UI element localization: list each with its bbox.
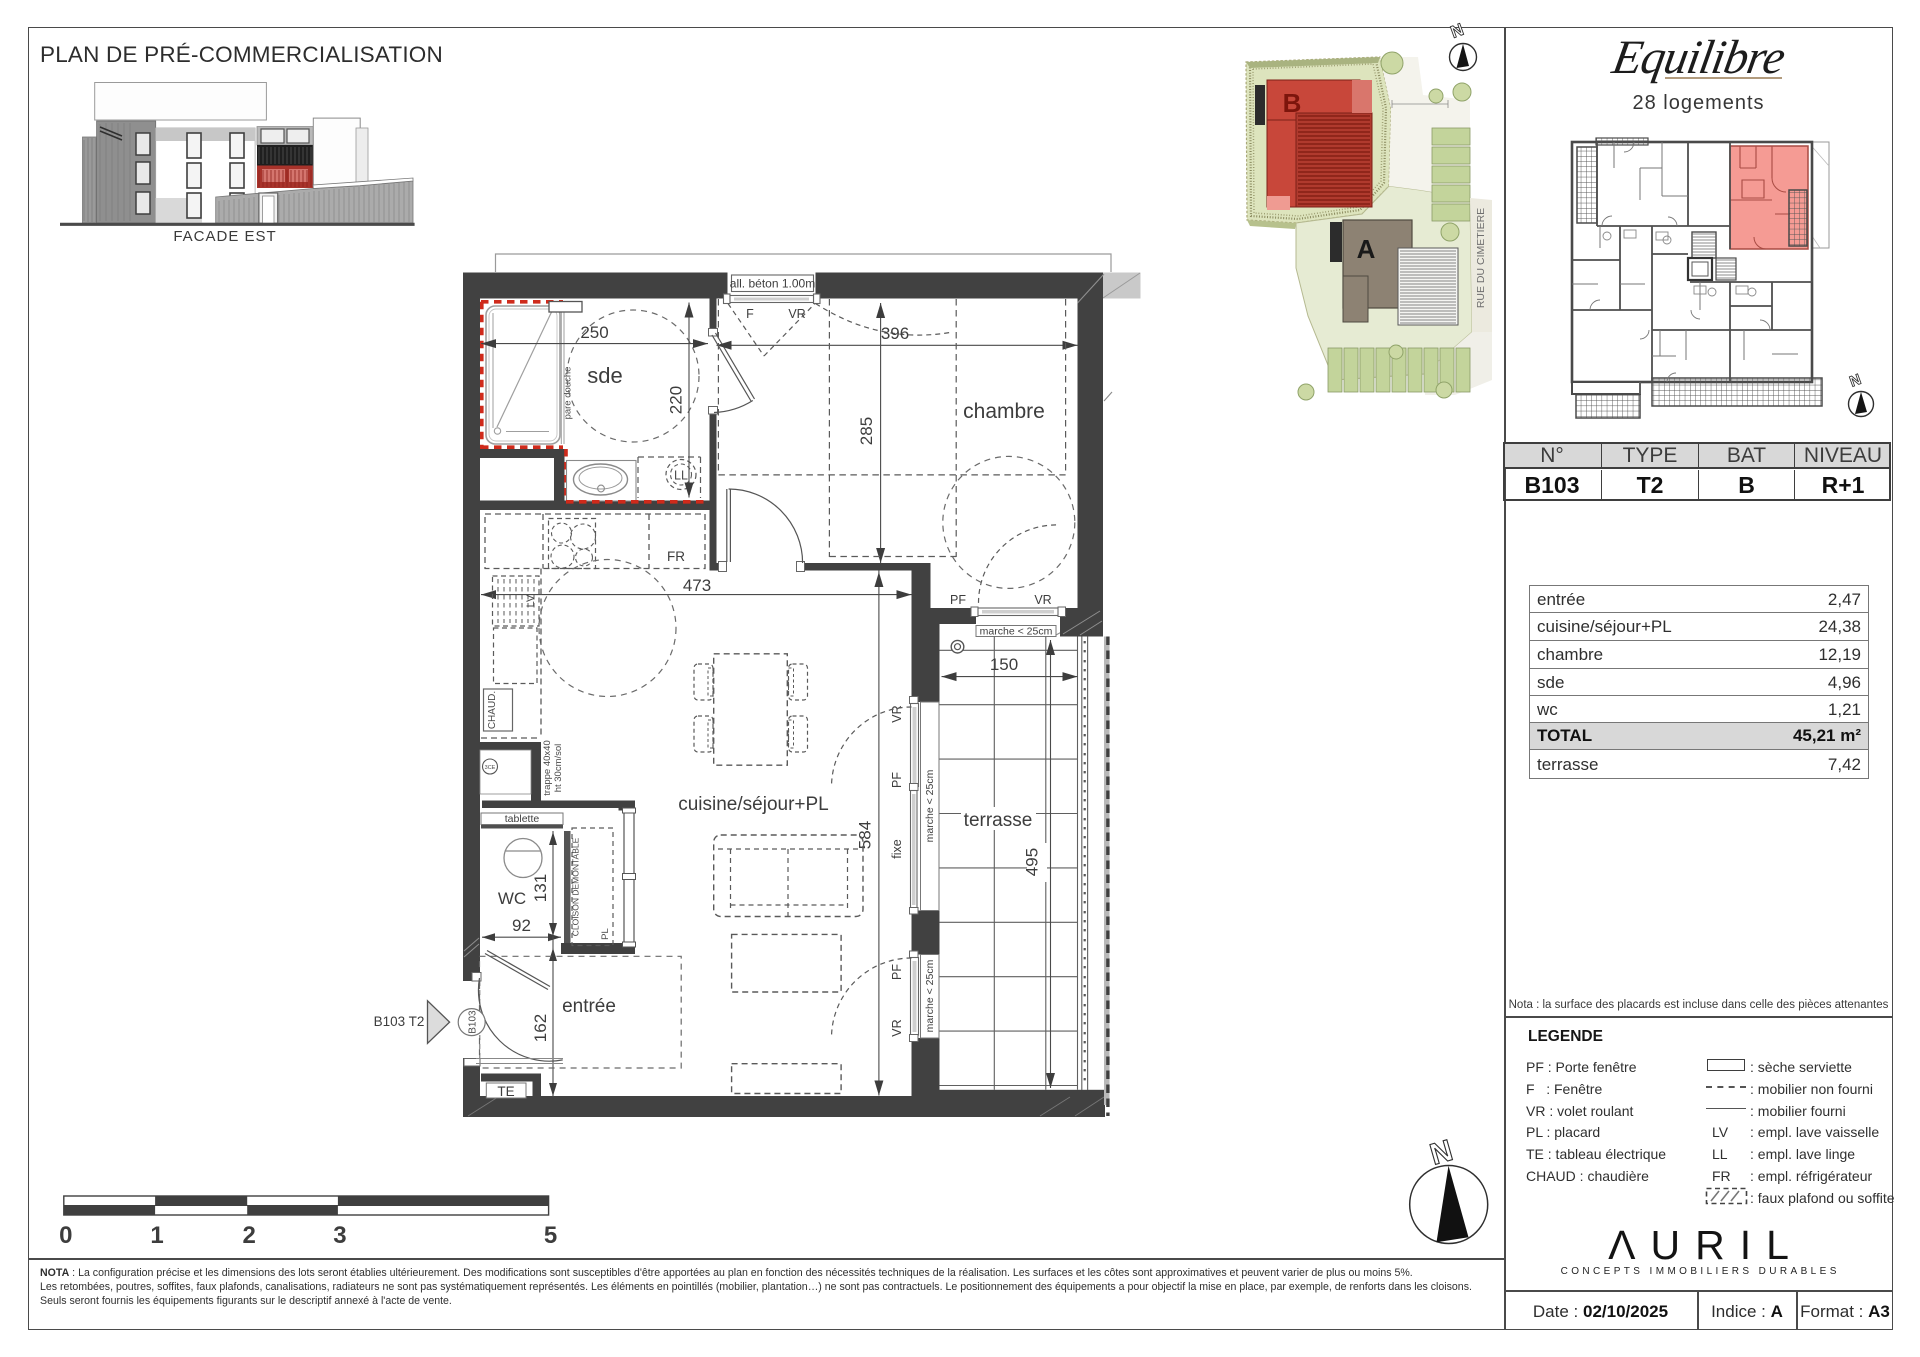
svg-text:CHAUD.: CHAUD. (487, 691, 498, 729)
svg-text:584: 584 (856, 821, 875, 849)
svg-text:marche < 25cm: marche < 25cm (980, 626, 1053, 638)
svg-text:B103 T2: B103 T2 (374, 1014, 425, 1029)
svg-text:473: 473 (683, 576, 711, 595)
svg-text:trappe 40x40: trappe 40x40 (542, 740, 553, 795)
svg-text:396: 396 (881, 324, 909, 343)
svg-text:VR: VR (788, 307, 805, 321)
svg-text:pare douche: pare douche (563, 367, 574, 420)
svg-text:all. béton 1.00m: all. béton 1.00m (730, 277, 815, 291)
svg-text:tablette: tablette (505, 813, 540, 825)
svg-text:ht 30cm/sol: ht 30cm/sol (553, 744, 564, 793)
svg-text:sde: sde (587, 363, 622, 388)
svg-text:150: 150 (990, 655, 1018, 674)
svg-text:2: 2 (243, 1222, 256, 1249)
svg-text:marche < 25cm: marche < 25cm (924, 769, 936, 842)
svg-text:TE: TE (497, 1084, 514, 1099)
svg-text:PF: PF (890, 964, 904, 980)
svg-text:220: 220 (667, 386, 686, 414)
svg-text:LV: LV (525, 594, 537, 607)
svg-text:1: 1 (150, 1222, 163, 1249)
svg-text:VR: VR (890, 1019, 904, 1036)
svg-text:B103: B103 (468, 1010, 479, 1034)
svg-text:marche < 25cm: marche < 25cm (924, 959, 936, 1032)
svg-text:162: 162 (531, 1014, 550, 1042)
svg-text:terrasse: terrasse (964, 810, 1033, 831)
svg-text:PL: PL (600, 928, 611, 940)
svg-text:250: 250 (580, 323, 608, 342)
svg-text:CLOISON DEMONTABLE: CLOISON DEMONTABLE (571, 837, 581, 936)
svg-text:cuisine/séjour+PL: cuisine/séjour+PL (678, 794, 829, 815)
svg-text:N: N (1847, 371, 1863, 391)
svg-text:entrée: entrée (562, 996, 616, 1017)
svg-text:B: B (1283, 88, 1302, 118)
svg-text:495: 495 (1023, 848, 1042, 876)
svg-text:3CE: 3CE (485, 765, 496, 771)
svg-text:5: 5 (544, 1222, 557, 1249)
svg-text:285: 285 (857, 417, 876, 445)
svg-text:0: 0 (59, 1222, 72, 1249)
svg-text:3: 3 (333, 1222, 346, 1249)
svg-text:VR: VR (1034, 593, 1051, 607)
svg-text:PF: PF (950, 593, 966, 607)
svg-text:chambre: chambre (963, 400, 1045, 423)
svg-text:92: 92 (512, 916, 531, 935)
svg-text:N: N (1426, 1134, 1456, 1172)
svg-text:RUE DU CIMETIERE: RUE DU CIMETIERE (1475, 208, 1487, 308)
svg-text:LL: LL (674, 469, 688, 483)
svg-text:fixe: fixe (890, 839, 904, 859)
svg-text:FR: FR (667, 549, 685, 564)
svg-text:A: A (1357, 234, 1376, 264)
svg-text:131: 131 (531, 874, 550, 902)
svg-text:F: F (746, 307, 754, 321)
svg-text:WC: WC (498, 889, 526, 908)
svg-text:PF: PF (890, 772, 904, 788)
svg-text:N: N (1448, 20, 1466, 42)
